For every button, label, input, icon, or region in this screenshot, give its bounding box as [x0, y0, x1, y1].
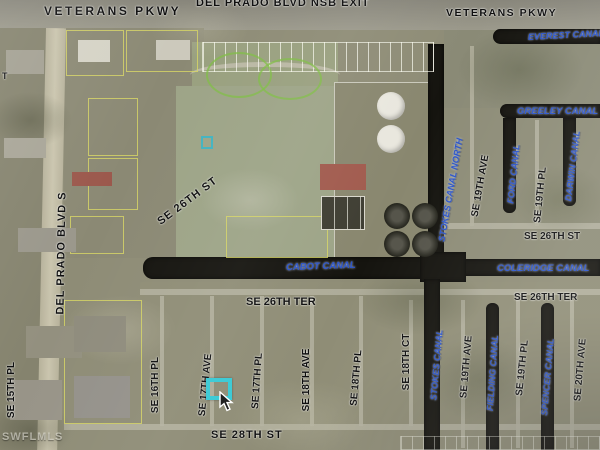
label-se-26th-ter-mid: SE 26TH TER [246, 297, 316, 308]
mouse-cursor [219, 391, 235, 413]
parcel-box-5 [70, 216, 124, 254]
watermark-swflmls: SWFLMLS [2, 431, 63, 443]
label-veterans-pkwy-left: VETERANS PKWY [44, 5, 181, 17]
building-gray-2 [4, 138, 46, 158]
aerial-map-canvas[interactable]: VETERANS PKWY DEL PRADO BLVD NSB EXIT VE… [0, 0, 600, 450]
plant-storage-tank-1 [377, 92, 405, 120]
plant-basin [321, 196, 365, 230]
plant-clarifier-2 [412, 203, 438, 229]
label-se-15th-pl: SE 15TH PL [7, 362, 17, 418]
label-se-28th-st: SE 28TH ST [211, 430, 283, 441]
building-red-roof-1 [72, 172, 112, 186]
plant-clarifier-4 [412, 231, 438, 257]
label-se-18th-ct: SE 18TH CT [402, 334, 412, 391]
building-gray-5 [10, 380, 62, 420]
label-del-prado-nsb-exit: DEL PRADO BLVD NSB EXIT [196, 0, 370, 9]
label-se-16th-pl: SE 16TH PL [151, 357, 161, 413]
parcel-box-3 [88, 98, 138, 156]
parcel-marker-square [201, 136, 213, 149]
building-white-2 [156, 40, 190, 60]
building-gray-7 [74, 376, 130, 418]
parcel-curvy-outline-2 [258, 58, 322, 100]
label-veterans-pkwy-right: VETERANS PKWY [446, 8, 557, 19]
label-del-prado-blvd-s: DEL PRADO BLVD S [55, 191, 68, 314]
parcel-box-plaza [226, 216, 328, 258]
label-coleridge-canal: COLERIDGE CANAL [497, 264, 589, 274]
building-white-1 [78, 40, 110, 62]
building-gray-6 [74, 316, 126, 352]
label-se-26th-ter-right: SE 26TH TER [514, 293, 577, 303]
plant-clarifier-1 [384, 203, 410, 229]
building-red-roof-2 [320, 164, 366, 190]
label-se-26th-st-right: SE 26TH ST [524, 232, 580, 242]
road-se-20th-ave [570, 300, 574, 448]
label-cabot-canal: CABOT CANAL [286, 261, 356, 273]
plant-clarifier-3 [384, 231, 410, 257]
building-gray-1 [6, 50, 44, 74]
label-greeley-canal: GREELEY CANAL [517, 107, 598, 117]
parcel-row-28th-st-south [400, 436, 600, 450]
label-se-18th-ave: SE 18TH AVE [302, 349, 312, 412]
label-left-edge-partial: T [2, 72, 8, 81]
plant-storage-tank-2 [377, 125, 405, 153]
